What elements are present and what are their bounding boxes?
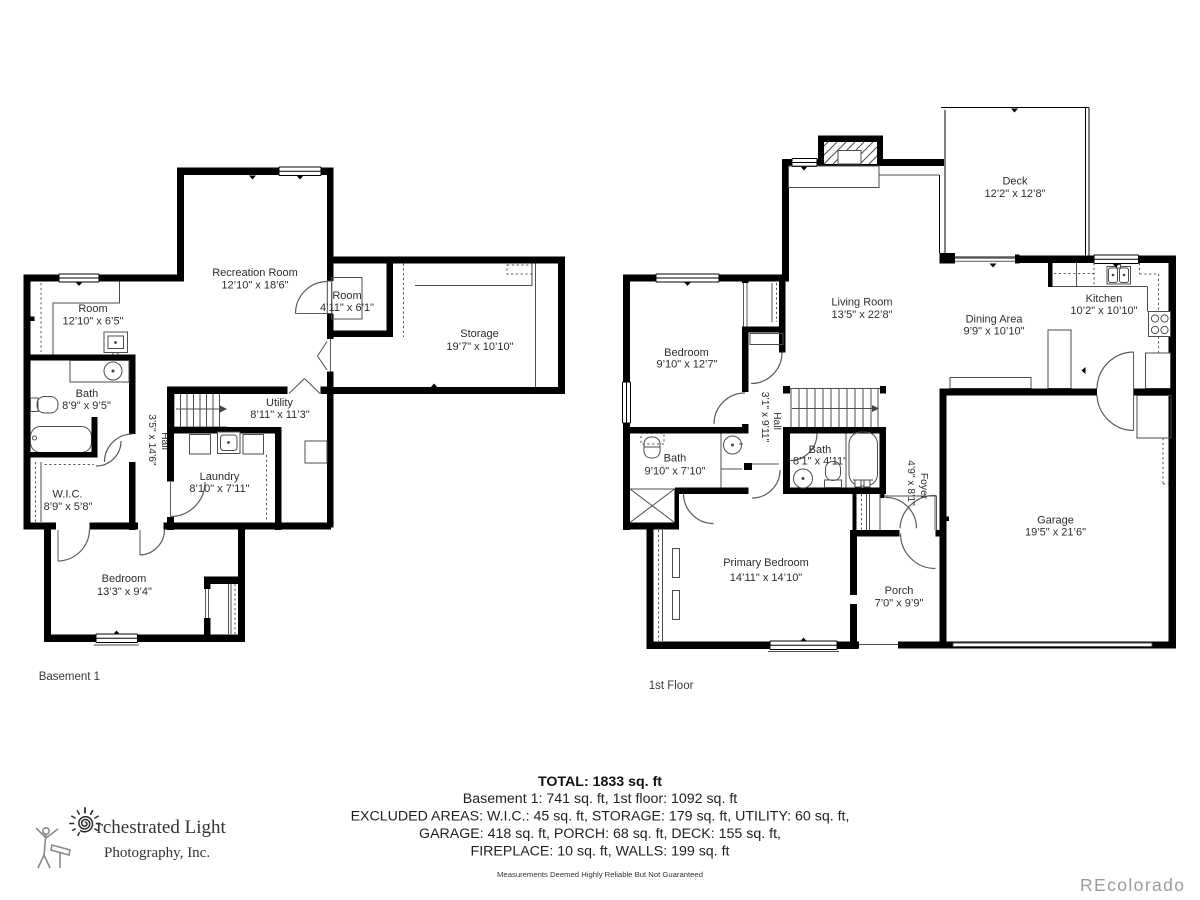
svg-text:Room: Room	[332, 290, 361, 302]
svg-text:Hall: Hall	[771, 412, 782, 430]
svg-text:Bath: Bath	[664, 453, 687, 465]
svg-text:Basement 1: 741 sq. ft, 1st fl: Basement 1: 741 sq. ft, 1st floor: 1092 …	[463, 791, 738, 807]
svg-text:Basement 1: Basement 1	[39, 671, 100, 683]
svg-text:4’11" x 6’1": 4’11" x 6’1"	[320, 302, 374, 314]
svg-text:Deck: Deck	[1002, 176, 1028, 188]
svg-text:13’5" x 22’8": 13’5" x 22’8"	[831, 309, 892, 321]
svg-text:Kitchen: Kitchen	[1086, 293, 1123, 305]
svg-text:Primary Bedroom: Primary Bedroom	[723, 557, 809, 569]
svg-text:REcolorado: REcolorado	[1080, 875, 1185, 895]
svg-text:EXCLUDED AREAS: W.I.C.: 45 sq.: EXCLUDED AREAS: W.I.C.: 45 sq. ft, STORA…	[351, 809, 850, 825]
svg-text:Dining Area: Dining Area	[966, 314, 1024, 326]
svg-text:Laundry: Laundry	[200, 471, 240, 483]
svg-text:12’10" x 18’6": 12’10" x 18’6"	[221, 280, 288, 292]
svg-text:3’1" x 9’11": 3’1" x 9’11"	[759, 392, 770, 443]
svg-text:12’2" x 12’8": 12’2" x 12’8"	[984, 188, 1045, 200]
svg-text:13’3" x 9’4": 13’3" x 9’4"	[97, 586, 152, 598]
svg-text:14’11" x 14’10": 14’11" x 14’10"	[730, 572, 803, 584]
svg-text:9’10" x 12’7": 9’10" x 12’7"	[656, 359, 717, 371]
svg-text:8’1" x 4’11": 8’1" x 4’11"	[793, 456, 847, 468]
svg-text:Bath: Bath	[809, 444, 832, 456]
svg-text:TOTAL: 1833 sq. ft: TOTAL: 1833 sq. ft	[538, 774, 662, 790]
svg-text:19’5" x 21’6": 19’5" x 21’6"	[1025, 527, 1086, 539]
svg-text:10’2" x 10’10": 10’2" x 10’10"	[1070, 305, 1137, 317]
svg-text:4’9" x 8’1": 4’9" x 8’1"	[905, 460, 916, 506]
svg-text:rchestrated Light: rchestrated Light	[97, 817, 227, 838]
svg-text:7’0" x 9’9": 7’0" x 9’9"	[875, 598, 924, 610]
svg-text:Measurements Deemed Highly Rel: Measurements Deemed Highly Reliable But …	[497, 870, 703, 879]
svg-text:FIREPLACE: 10 sq. ft, WALLS: 1: FIREPLACE: 10 sq. ft, WALLS: 199 sq. ft	[471, 844, 730, 860]
svg-text:Recreation Room: Recreation Room	[212, 267, 298, 279]
svg-text:GARAGE: 418 sq. ft, PORCH: 68: GARAGE: 418 sq. ft, PORCH: 68 sq. ft, DE…	[419, 826, 781, 842]
svg-text:8’9" x 9’5": 8’9" x 9’5"	[62, 400, 111, 412]
svg-text:8’9" x 5’8": 8’9" x 5’8"	[44, 501, 93, 513]
svg-text:12’10" x 6’5": 12’10" x 6’5"	[62, 316, 123, 328]
svg-text:Photography, Inc.: Photography, Inc.	[104, 845, 210, 861]
svg-text:Foyer: Foyer	[918, 473, 929, 500]
svg-text:Porch: Porch	[885, 585, 914, 597]
svg-text:9’10" x 7’10": 9’10" x 7’10"	[644, 466, 705, 478]
svg-text:Bedroom: Bedroom	[664, 347, 709, 359]
svg-text:Garage: Garage	[1037, 515, 1074, 527]
svg-text:Living Room: Living Room	[831, 297, 892, 309]
svg-text:3’5" x 14’6": 3’5" x 14’6"	[146, 414, 157, 466]
svg-text:Utility: Utility	[266, 397, 293, 409]
svg-text:19’7" x 10’10": 19’7" x 10’10"	[446, 341, 513, 353]
svg-text:Storage: Storage	[460, 328, 499, 340]
svg-text:8’11" x 11’3": 8’11" x 11’3"	[250, 409, 309, 421]
svg-text:Bath: Bath	[76, 388, 99, 400]
svg-text:9’9" x 10’10": 9’9" x 10’10"	[963, 326, 1024, 338]
svg-text:Room: Room	[78, 303, 107, 315]
svg-text:1st Floor: 1st Floor	[649, 680, 694, 692]
svg-text:8’10" x 7’11": 8’10" x 7’11"	[189, 483, 249, 495]
svg-text:Bedroom: Bedroom	[102, 573, 147, 585]
svg-text:W.I.C.: W.I.C.	[53, 489, 83, 501]
